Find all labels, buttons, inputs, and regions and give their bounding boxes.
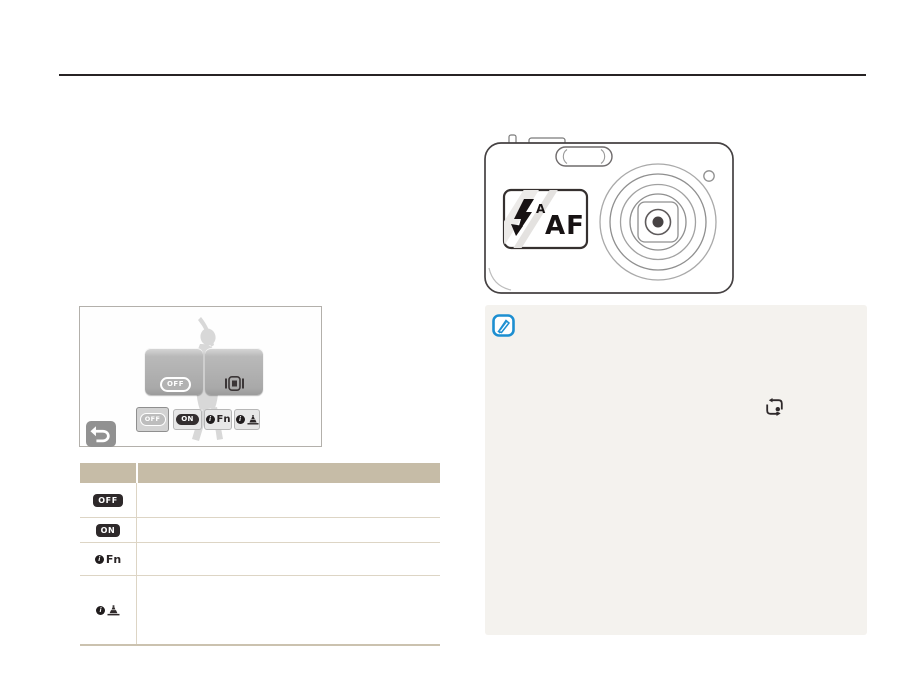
camera-screen-screenshot: OFF OFF ON i Fn i — [79, 306, 322, 447]
icon-cell: OFF — [80, 483, 137, 517]
info-icon: i — [236, 415, 245, 424]
info-icon: i — [206, 415, 215, 424]
option-fn-button: i Fn — [204, 409, 232, 430]
icon-cell: i Fn — [80, 543, 137, 575]
description-cell — [137, 543, 440, 575]
table-row: OFF — [80, 483, 440, 518]
af-label: AF — [545, 211, 585, 241]
option-guide-button: i — [234, 409, 260, 430]
lens — [600, 164, 716, 280]
off-pill: OFF — [160, 377, 191, 392]
table-row: i — [80, 576, 440, 646]
fn-label: Fn — [217, 414, 231, 425]
display-off-button: OFF — [145, 348, 203, 395]
table-header-row — [80, 463, 440, 483]
fn-label: Fn — [106, 553, 121, 566]
table-header-desc-col — [138, 463, 440, 483]
on-badge: ON — [96, 524, 121, 537]
on-pill: ON — [176, 414, 199, 425]
indicator-light — [704, 171, 714, 181]
description-cell — [137, 576, 440, 644]
lcd-display-icon — [225, 376, 244, 391]
description-cell — [137, 483, 440, 517]
header-rule — [59, 74, 866, 76]
table-header-icon-col — [80, 463, 136, 483]
description-cell — [137, 518, 440, 542]
icon-cell: i — [80, 576, 137, 644]
landmark-icon — [107, 604, 120, 616]
info-icon: i — [96, 606, 105, 615]
icon-cell: ON — [80, 518, 137, 542]
shutter-button — [556, 147, 612, 166]
info-icon: i — [95, 555, 104, 564]
options-table: OFF ON i Fn i — [80, 463, 440, 646]
table-row: i Fn — [80, 543, 440, 576]
landmark-icon — [247, 414, 259, 425]
option-on-button: ON — [173, 409, 202, 430]
display-on-button — [205, 348, 263, 395]
off-pill: OFF — [140, 413, 166, 426]
smart-frame-icon — [764, 397, 785, 417]
note-pencil-icon — [492, 314, 515, 337]
camera-illustration: A AF — [480, 120, 740, 300]
off-badge: OFF — [93, 494, 123, 507]
back-button — [86, 421, 116, 447]
option-off-button: OFF — [136, 407, 169, 432]
manual-page: OFF OFF ON i Fn i — [0, 0, 924, 697]
table-row: ON — [80, 518, 440, 543]
note-box — [485, 305, 867, 635]
return-arrow-icon — [90, 423, 112, 445]
